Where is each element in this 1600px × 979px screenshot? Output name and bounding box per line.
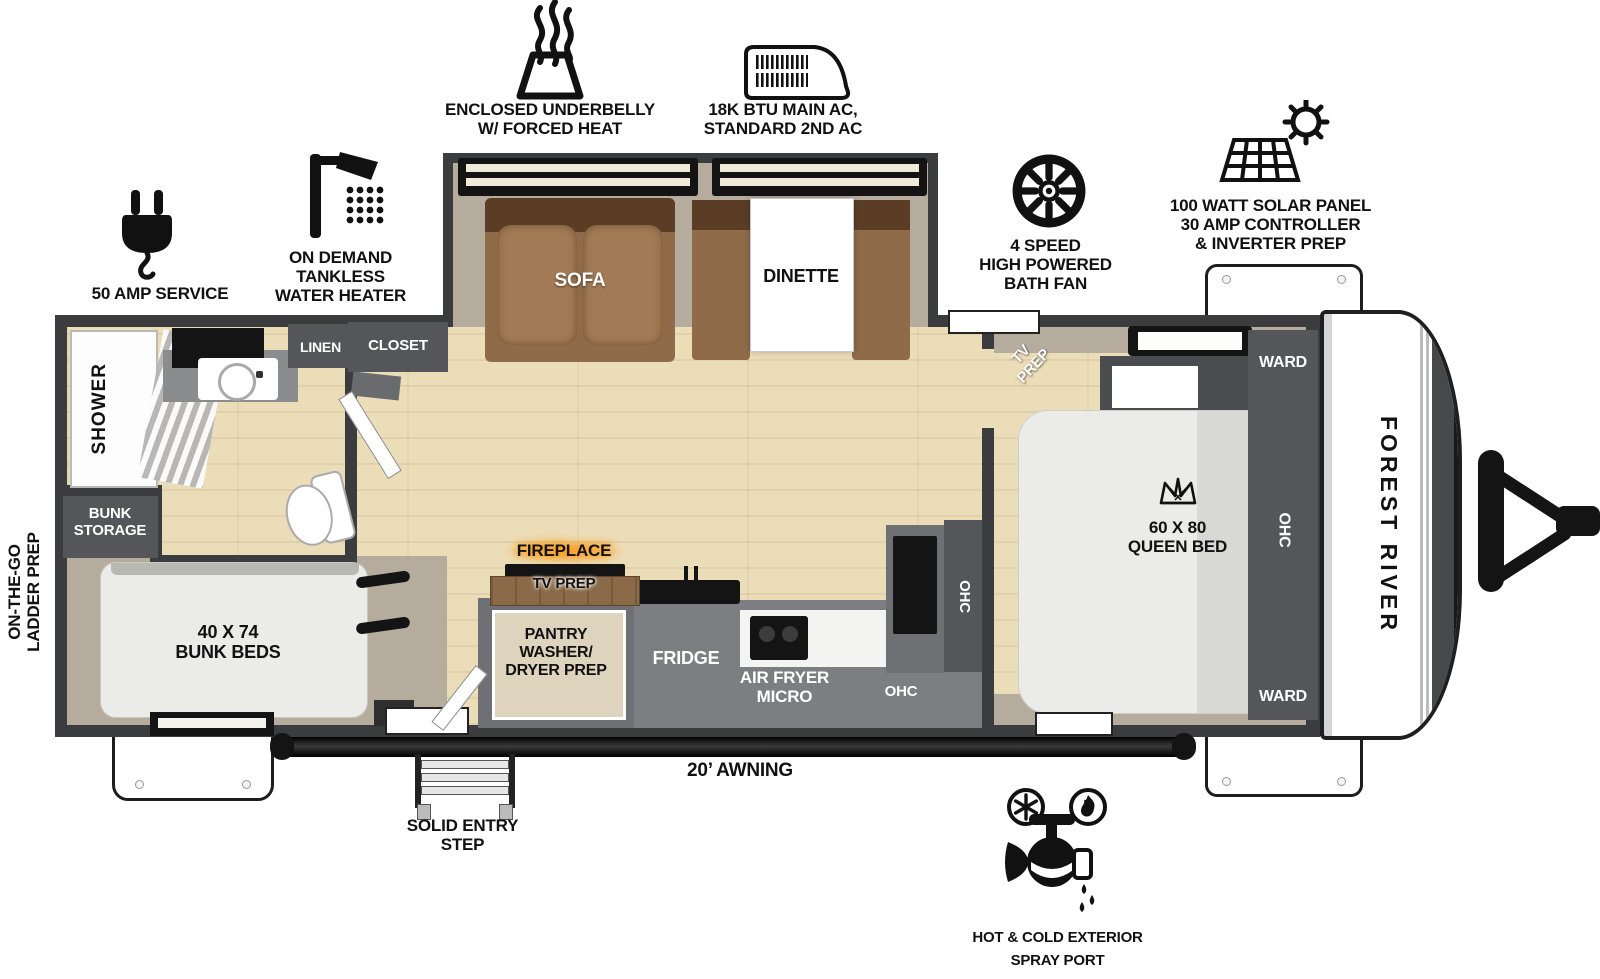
bath-fan-label: 4 SPEED HIGH POWERED BATH FAN <box>958 236 1133 294</box>
awning-bar <box>277 737 1189 757</box>
brand-logo: FOREST RIVER <box>1376 416 1402 634</box>
window-top-galley <box>948 310 1040 334</box>
ac-label: 18K BTU MAIN AC, STANDARD 2ND AC <box>688 100 878 138</box>
ward-bottom-label: WARD <box>1248 688 1318 706</box>
window-bunk <box>150 712 274 736</box>
stove <box>750 616 808 660</box>
dinette-label: DINETTE <box>740 266 862 286</box>
bunk-storage-label: BUNK STORAGE <box>60 506 160 540</box>
crown-icon <box>1154 474 1202 512</box>
fridge-label: FRIDGE <box>634 648 738 668</box>
bedroom-wall <box>982 428 994 727</box>
pantry-label: PANTRY WASHER/ DRYER PREP <box>490 626 622 680</box>
queen-bed <box>1018 410 1250 714</box>
kitchen-tv <box>893 536 937 634</box>
slideout-window-left <box>458 158 698 196</box>
tankless-water-heater-icon <box>298 148 394 248</box>
roof-mount-panel-front-bottom <box>1205 733 1363 797</box>
ohc-kitchen-label: OHC <box>870 684 932 701</box>
window-bedroom-bottom <box>1035 712 1113 736</box>
front-cap: FOREST RIVER <box>1320 310 1462 740</box>
bunk-beds-label: 40 X 74 BUNK BEDS <box>128 622 328 663</box>
ladder-prep-label: ON-THE-GO LADDER PREP <box>5 512 49 672</box>
sink-faucet <box>684 566 688 582</box>
solar-label: 100 WATT SOLAR PANEL 30 AMP CONTROLLER &… <box>1118 196 1423 254</box>
solar-panel-icon <box>1218 100 1330 192</box>
ohc-bedroom-label: OHC <box>1274 513 1292 548</box>
tv-prep-console-label: TV PREP <box>490 576 638 593</box>
spray-port-icon <box>1002 812 1106 916</box>
floorplan-canvas: FOREST RIVER SOFA DINETTE <box>0 0 1600 979</box>
linen-label: LINEN <box>288 340 353 356</box>
forced-heat-label: ENCLOSED UNDERBELLY W/ FORCED HEAT <box>430 100 670 138</box>
fireplace-label: FIREPLACE <box>490 541 638 560</box>
stabilizer-pad-rear <box>112 733 274 801</box>
bath-fan-icon <box>1008 150 1090 232</box>
ward-top-label: WARD <box>1248 354 1318 372</box>
bedroom-skylight <box>1128 326 1252 356</box>
forced-heat-icon <box>500 0 600 102</box>
closet-label: CLOSET <box>348 338 448 355</box>
entry-step-label: SOLID ENTRY STEP <box>395 816 530 854</box>
awning-label: 20’ AWNING <box>640 760 840 781</box>
sofa-label: SOFA <box>500 270 660 291</box>
shower-label: SHOWER <box>89 363 110 455</box>
ac-unit-icon <box>736 42 852 100</box>
hitch-coupler <box>1556 506 1600 536</box>
slideout-window-right <box>712 158 927 196</box>
kitchen-sink-counter <box>634 580 740 604</box>
airfryer-label: AIR FRYER MICRO <box>702 668 867 706</box>
kitchen-tall-cabinet: OHC <box>944 520 982 672</box>
queen-bed-label: 60 X 80 QUEEN BED <box>1110 518 1245 556</box>
50amp-label: 50 AMP SERVICE <box>75 284 245 303</box>
50amp-plug-icon <box>118 188 176 288</box>
slideout-wall-left <box>443 153 453 327</box>
slideout-wall-right <box>928 153 938 327</box>
ohc-kitchen-vertical-label: OHC <box>955 580 972 613</box>
entry-step <box>415 754 515 816</box>
water-heater-label: ON DEMAND TANKLESS WATER HEATER <box>258 248 423 306</box>
bath-sink <box>198 358 278 400</box>
bedroom-dresser <box>1100 356 1254 414</box>
spray-port-label: HOT & COLD EXTERIOR SPRAY PORT <box>950 926 1165 973</box>
